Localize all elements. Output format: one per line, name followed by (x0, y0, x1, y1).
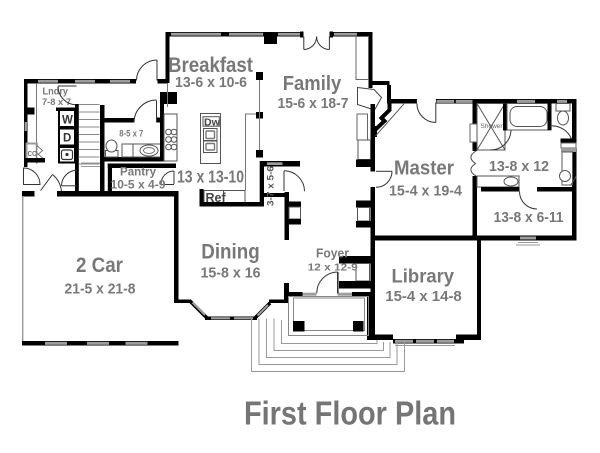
svg-text:Family: Family (283, 72, 342, 95)
svg-text:Dw: Dw (204, 116, 221, 128)
svg-text:12 x 12-9: 12 x 12-9 (308, 262, 358, 274)
svg-text:Pantry: Pantry (120, 167, 157, 179)
svg-text:15-8 x 16: 15-8 x 16 (201, 266, 261, 282)
svg-text:13-8 x 12: 13-8 x 12 (489, 159, 549, 175)
svg-text:13 x 13-10: 13 x 13-10 (177, 167, 244, 187)
svg-text:2 Car: 2 Car (76, 253, 124, 277)
svg-text:Foyer: Foyer (316, 247, 349, 261)
svg-text:Library: Library (392, 266, 455, 288)
svg-text:Master: Master (394, 158, 454, 180)
svg-text:Dining: Dining (201, 241, 260, 264)
svg-text:D: D (63, 133, 71, 145)
svg-text:W: W (62, 115, 73, 127)
svg-text:15-6 x 18-7: 15-6 x 18-7 (278, 96, 349, 112)
svg-text:10-5 x 4-9: 10-5 x 4-9 (111, 180, 166, 192)
svg-text:First Floor Plan: First Floor Plan (244, 395, 456, 432)
svg-text:21-5 x 21-8: 21-5 x 21-8 (65, 282, 136, 298)
svg-text:Lndry: Lndry (43, 86, 69, 98)
svg-text:Shower: Shower (481, 123, 504, 130)
svg-text:15-4 x 14-8: 15-4 x 14-8 (385, 288, 462, 305)
svg-text:13-8 x 6-11: 13-8 x 6-11 (494, 210, 564, 226)
svg-text:cc: cc (28, 148, 38, 158)
svg-text:13-6 x 10-6: 13-6 x 10-6 (175, 75, 247, 91)
svg-text:Breakfast: Breakfast (168, 53, 253, 77)
svg-text:8-5 x 7: 8-5 x 7 (119, 129, 143, 139)
svg-text:3-7 x 5-6: 3-7 x 5-6 (266, 166, 277, 206)
svg-text:15-4 x 19-4: 15-4 x 19-4 (389, 184, 462, 200)
